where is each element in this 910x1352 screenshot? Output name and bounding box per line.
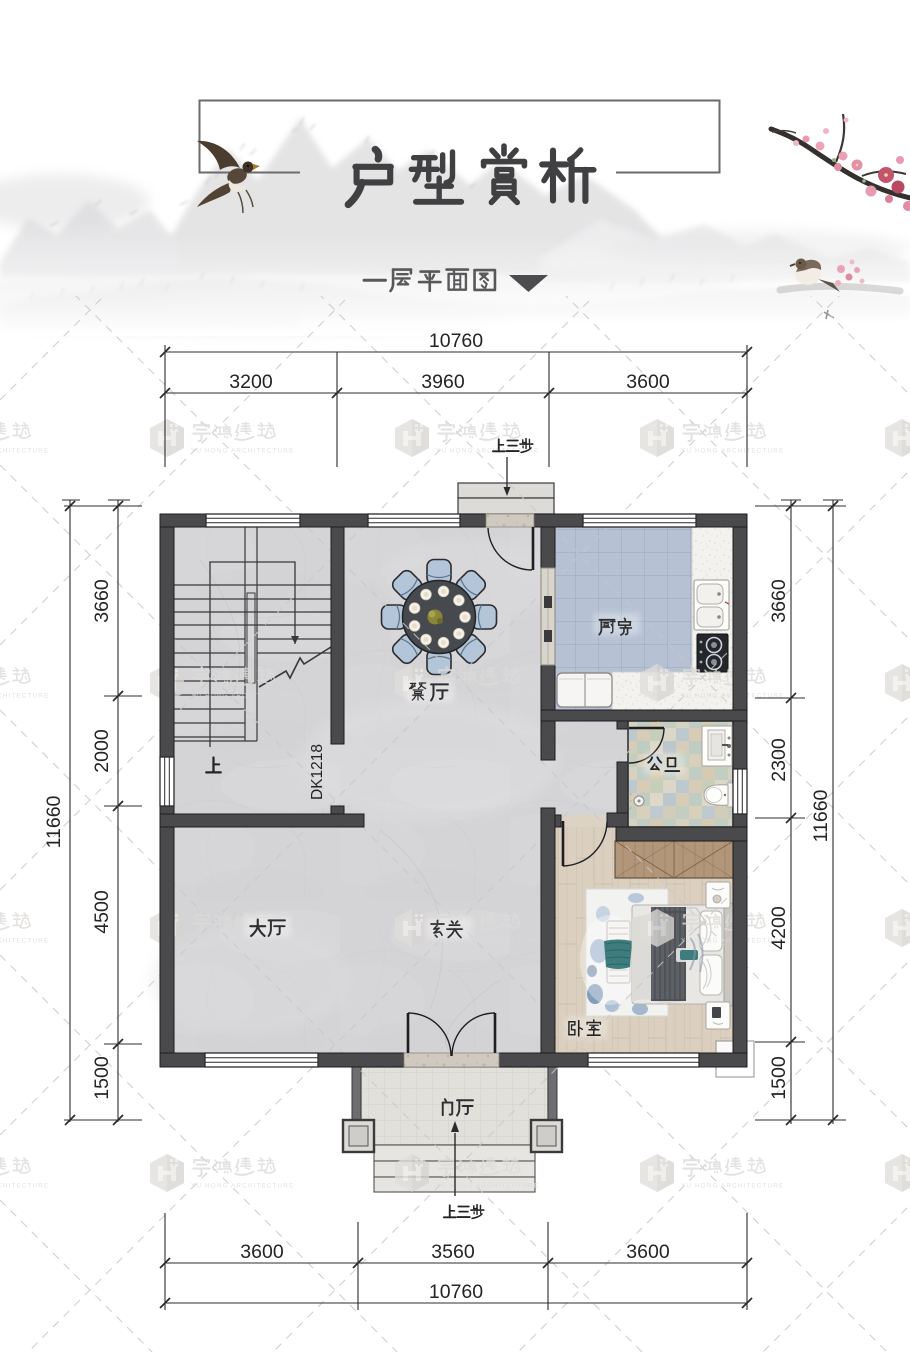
- svg-text:3200: 3200: [229, 371, 273, 393]
- svg-text:3660: 3660: [768, 579, 790, 623]
- svg-text:1500: 1500: [91, 1056, 113, 1100]
- svg-text:4200: 4200: [768, 906, 790, 950]
- svg-text:3660: 3660: [91, 579, 113, 623]
- svg-text:11660: 11660: [43, 795, 65, 848]
- svg-text:2000: 2000: [91, 729, 113, 773]
- svg-text:10760: 10760: [429, 330, 483, 352]
- svg-text:4500: 4500: [91, 890, 113, 934]
- svg-text:3600: 3600: [240, 1241, 284, 1263]
- svg-text:2300: 2300: [768, 738, 790, 782]
- svg-text:3560: 3560: [431, 1241, 475, 1263]
- svg-text:1500: 1500: [768, 1056, 790, 1100]
- svg-text:10760: 10760: [429, 1281, 483, 1303]
- svg-text:DK1218: DK1218: [309, 744, 326, 800]
- svg-text:11660: 11660: [810, 789, 832, 842]
- svg-text:3600: 3600: [626, 371, 670, 393]
- svg-text:3600: 3600: [626, 1241, 670, 1263]
- svg-text:3960: 3960: [421, 371, 465, 393]
